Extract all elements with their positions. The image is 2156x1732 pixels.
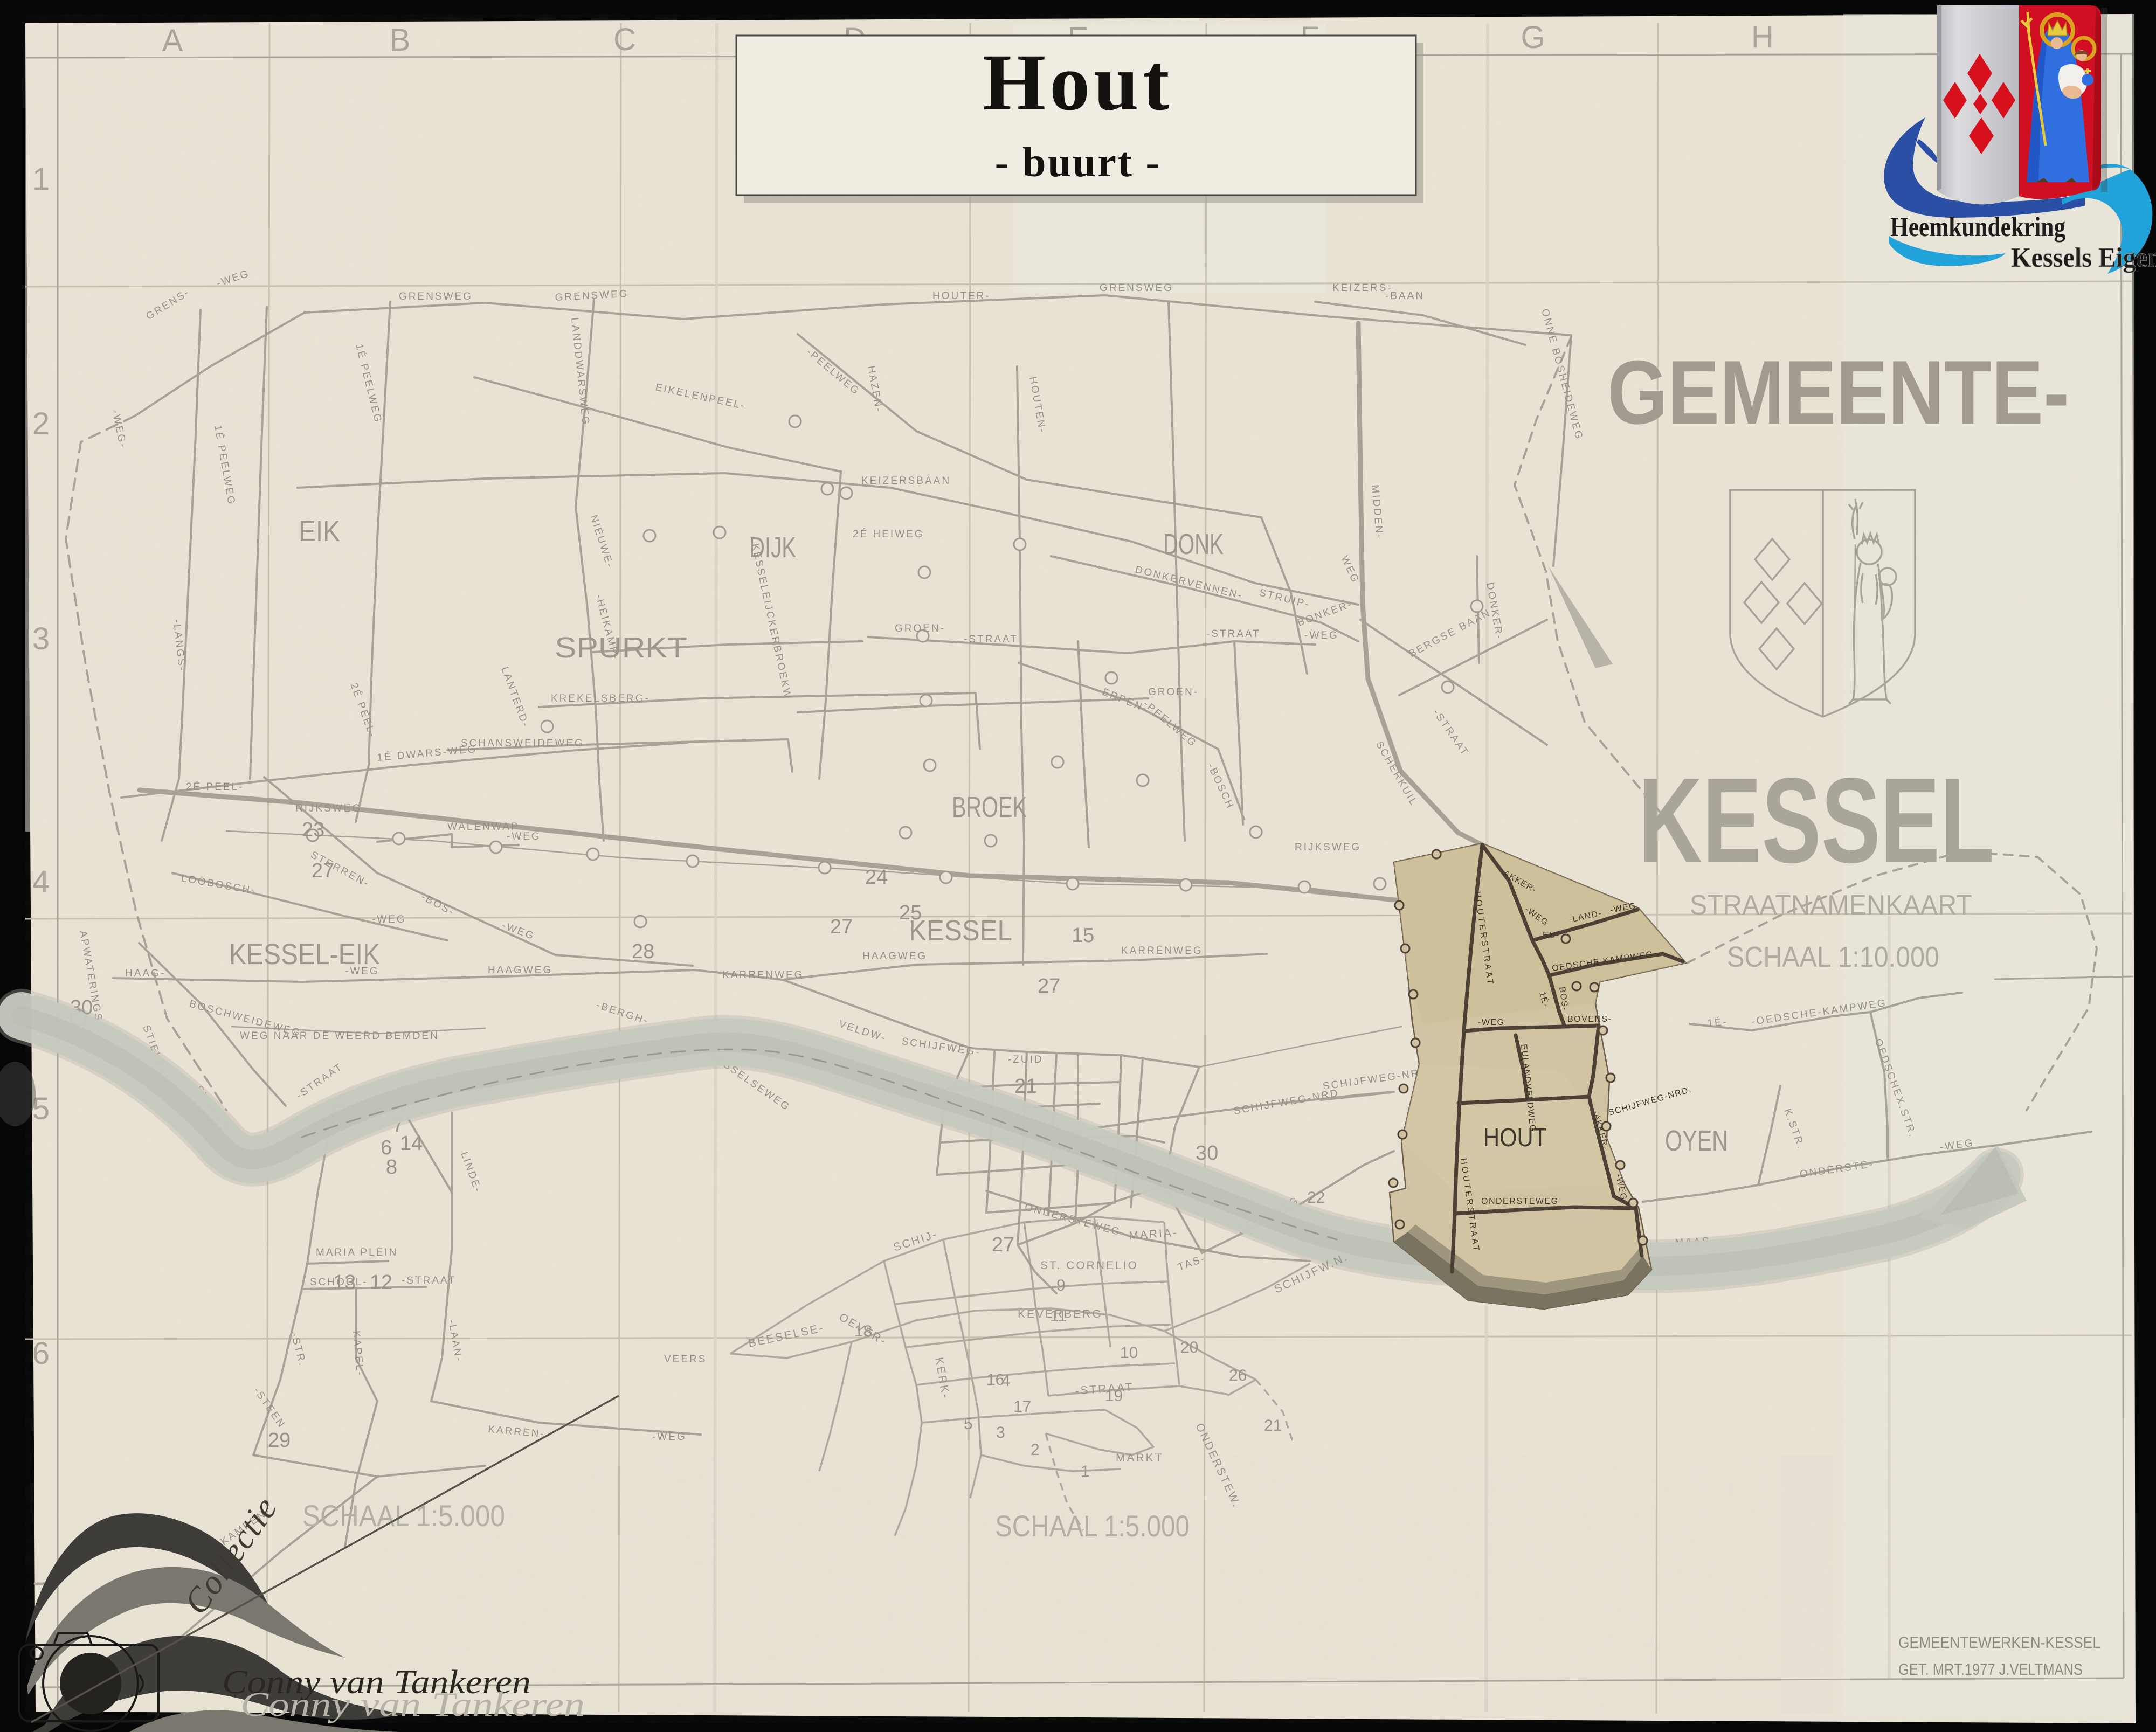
svg-text:GEMEENTEWERKEN-KESSEL: GEMEENTEWERKEN-KESSEL [1898,1634,2100,1652]
svg-text:2: 2 [32,406,50,441]
svg-text:STRAATNAMENKAART: STRAATNAMENKAART [1690,890,1972,921]
svg-text:2É PEEL-: 2É PEEL- [186,781,244,793]
svg-text:27: 27 [992,1234,1014,1256]
svg-text:HOUT: HOUT [1483,1124,1547,1152]
svg-text:4: 4 [1001,1372,1011,1390]
svg-text:GRENSWEG: GRENSWEG [399,291,473,302]
svg-text:VEERS: VEERS [664,1354,707,1365]
svg-text:HAAG-: HAAG- [125,968,165,979]
svg-text:SPURKT: SPURKT [555,632,687,664]
svg-text:BOVENS-: BOVENS- [1567,1015,1612,1024]
svg-text:SCHAAL 1:5.000: SCHAAL 1:5.000 [995,1509,1190,1543]
svg-text:25: 25 [899,902,922,924]
svg-text:27: 27 [1038,975,1060,997]
svg-text:-WEG: -WEG [345,966,379,977]
svg-text:4: 4 [32,864,50,899]
svg-text:-WEG: -WEG [372,914,406,925]
svg-text:28: 28 [632,940,654,963]
svg-text:26: 26 [1229,1367,1247,1384]
svg-text:1: 1 [32,162,50,197]
svg-text:23: 23 [302,819,324,841]
svg-text:5: 5 [964,1415,973,1433]
svg-text:- buurt -: - buurt - [995,138,1162,185]
svg-text:10: 10 [1120,1344,1138,1362]
svg-text:Conny van Tankeren: Conny van Tankeren [240,1685,585,1723]
svg-text:KEVERBERG-: KEVERBERG- [1018,1308,1108,1320]
svg-text:RIJKSWEG: RIJKSWEG [1295,842,1361,853]
svg-text:2: 2 [1031,1441,1040,1459]
svg-text:H: H [1751,19,1774,54]
svg-text:WEG NAAR DE WEERD BEMDEN: WEG NAAR DE WEERD BEMDEN [240,1030,439,1042]
svg-text:8: 8 [386,1156,397,1179]
svg-text:GROEN-: GROEN- [1148,687,1199,698]
svg-text:ONDERSTEWEG: ONDERSTEWEG [1481,1197,1559,1206]
svg-text:3: 3 [996,1424,1005,1442]
svg-text:-WEG: -WEG [507,831,541,842]
svg-text:-STRAAT: -STRAAT [964,634,1018,645]
svg-text:22: 22 [1307,1189,1325,1207]
svg-text:29: 29 [268,1429,291,1452]
svg-text:Kessels Eigen: Kessels Eigen [2011,243,2156,273]
svg-text:C: C [613,22,636,57]
svg-text:A: A [162,23,183,58]
svg-text:6: 6 [32,1336,50,1371]
svg-text:24: 24 [865,866,888,889]
svg-text:21: 21 [1014,1075,1037,1098]
svg-text:30: 30 [1196,1142,1218,1165]
svg-text:Heemkundekring: Heemkundekring [1890,212,2065,243]
svg-text:GRENSWEG: GRENSWEG [1100,282,1173,294]
svg-text:G: G [1521,20,1545,55]
svg-text:SCHOOL-: SCHOOL- [310,1277,368,1288]
svg-text:MARKT: MARKT [1116,1452,1164,1464]
svg-text:HAAGWEG: HAAGWEG [862,951,927,962]
svg-text:2É HEIWEG: 2É HEIWEG [853,529,924,540]
svg-text:BROEK: BROEK [952,791,1027,823]
svg-text:-ZUID: -ZUID [1008,1054,1044,1065]
svg-text:KESSEL: KESSEL [909,915,1012,947]
svg-text:KESSEL: KESSEL [1638,752,1994,888]
svg-text:SCHAAL 1:10.000: SCHAAL 1:10.000 [1727,941,1939,973]
svg-text:KARRENWEG: KARRENWEG [1121,945,1203,957]
svg-text:17: 17 [1013,1398,1031,1416]
svg-text:-WEG: -WEG [1304,630,1339,641]
svg-text:-WEG: -WEG [652,1431,687,1443]
svg-text:B: B [390,23,411,58]
svg-text:KEIZERSBAAN: KEIZERSBAAN [861,475,951,487]
svg-text:-BAAN: -BAAN [1385,290,1425,302]
svg-text:3: 3 [32,621,50,656]
svg-text:MARIA PLEIN: MARIA PLEIN [316,1247,398,1258]
svg-text:ST. CORNELIO: ST. CORNELIO [1040,1259,1138,1272]
svg-text:15: 15 [1072,924,1094,947]
svg-text:12: 12 [370,1271,392,1294]
svg-text:EU-: EU- [1543,931,1560,940]
svg-text:DONK: DONK [1163,528,1224,560]
svg-text:HAAGWEG: HAAGWEG [488,965,552,976]
svg-text:-STRAAT: -STRAAT [1206,628,1261,640]
svg-text:9: 9 [1056,1277,1066,1294]
svg-text:-WEG: -WEG [1478,1018,1505,1027]
svg-text:KEIZERS-: KEIZERS- [1332,282,1393,294]
svg-text:27: 27 [830,916,853,938]
svg-text:GROEN-: GROEN- [895,623,945,634]
svg-text:GEMEENTE-: GEMEENTE- [1607,342,2069,443]
svg-text:SCHANSWEIDEWEG: SCHANSWEIDEWEG [461,738,584,749]
svg-text:1: 1 [1081,1463,1090,1480]
svg-text:Hout: Hout [983,38,1173,127]
svg-text:EIK: EIK [299,515,340,548]
svg-text:RIJKSWEG: RIJKSWEG [295,803,362,814]
svg-text:21: 21 [1264,1417,1282,1435]
svg-text:OYEN: OYEN [1665,1125,1728,1157]
svg-text:20: 20 [1180,1339,1198,1356]
svg-text:HOUTER-: HOUTER- [932,290,991,302]
svg-text:GET. MRT.1977 J.VELTMANS: GET. MRT.1977 J.VELTMANS [1898,1661,2083,1679]
svg-text:-STRAAT: -STRAAT [402,1275,456,1286]
svg-text:1É-: 1É- [1707,1016,1729,1029]
svg-text:KARRENWEG: KARRENWEG [722,969,804,981]
svg-text:14: 14 [400,1132,423,1155]
svg-text:KREKELSBERG-: KREKELSBERG- [551,693,650,704]
